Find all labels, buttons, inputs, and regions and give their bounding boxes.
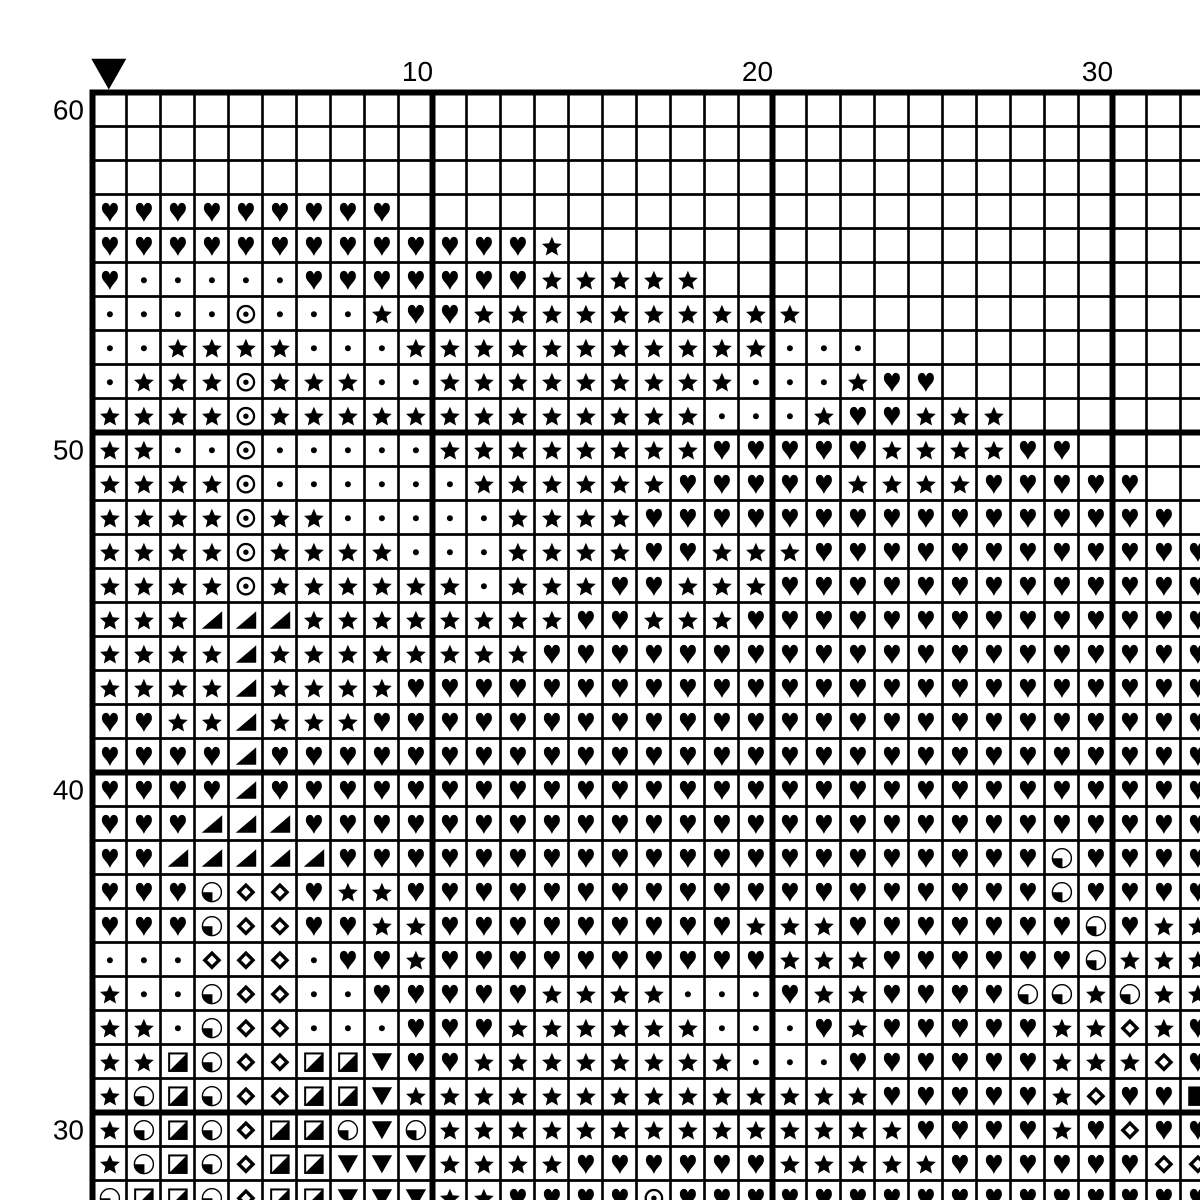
svg-text:60: 60: [53, 95, 84, 126]
svg-text:30: 30: [53, 1115, 84, 1146]
svg-text:30: 30: [1082, 56, 1113, 87]
svg-text:20: 20: [742, 56, 773, 87]
svg-text:40: 40: [53, 775, 84, 806]
svg-text:50: 50: [53, 435, 84, 466]
svg-text:10: 10: [402, 56, 433, 87]
